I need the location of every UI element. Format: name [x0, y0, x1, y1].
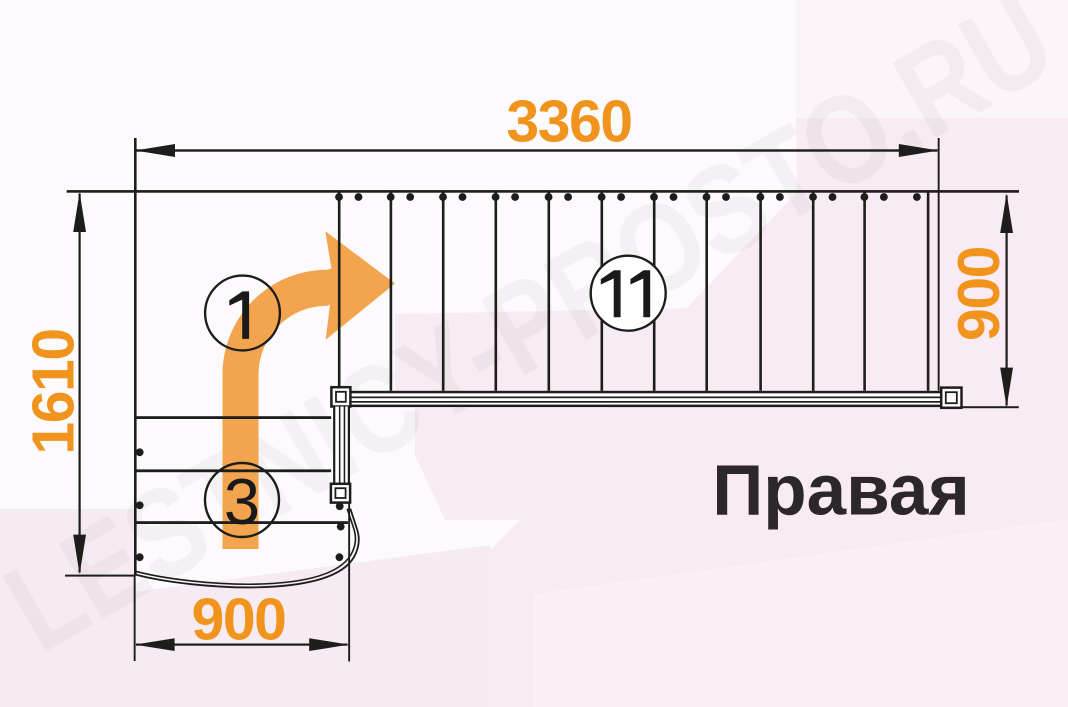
svg-text:900: 900	[946, 247, 1012, 341]
svg-text:3360: 3360	[506, 89, 631, 155]
svg-text:Правая: Правая	[712, 452, 970, 531]
svg-text:1610: 1610	[21, 329, 87, 454]
svg-text:3: 3	[224, 465, 260, 538]
svg-text:900: 900	[192, 587, 286, 653]
